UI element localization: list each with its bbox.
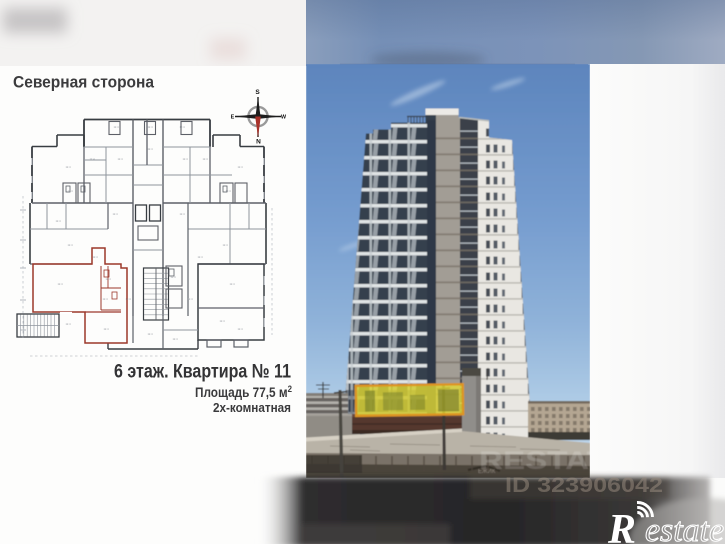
svg-text:12.4: 12.4 (112, 212, 118, 216)
svg-text:12.4: 12.4 (229, 282, 235, 286)
svg-text:12.4: 12.4 (170, 275, 176, 279)
svg-text:12.4: 12.4 (103, 327, 109, 331)
svg-text:12.4: 12.4 (202, 157, 208, 161)
svg-text:12.4: 12.4 (57, 282, 63, 286)
svg-text:W: W (281, 115, 287, 121)
svg-text:12.4: 12.4 (172, 337, 178, 341)
svg-text:S: S (255, 89, 260, 96)
svg-text:12.4: 12.4 (225, 189, 231, 193)
svg-text:12.4: 12.4 (179, 212, 185, 216)
svg-text:2х-комнатная: 2х-комнатная (213, 400, 291, 415)
svg-text:R: R (607, 507, 636, 544)
svg-text:12.4: 12.4 (65, 322, 71, 326)
svg-text:12.4: 12.4 (147, 332, 153, 336)
svg-text:12.4: 12.4 (219, 319, 225, 323)
svg-text:12.4: 12.4 (55, 219, 61, 223)
svg-text:12.4: 12.4 (117, 157, 123, 161)
svg-text:12.4: 12.4 (237, 165, 243, 169)
svg-text:12.4: 12.4 (197, 255, 203, 259)
svg-text:12.4: 12.4 (65, 165, 71, 169)
svg-text:12.4: 12.4 (113, 125, 119, 129)
svg-text:Северная сторона: Северная сторона (13, 73, 154, 92)
svg-text:12.4: 12.4 (182, 157, 188, 161)
svg-text:12.4: 12.4 (147, 147, 153, 151)
svg-text:12.4: 12.4 (222, 243, 228, 247)
svg-text:N: N (256, 139, 261, 146)
svg-text:12.4: 12.4 (179, 125, 185, 129)
svg-text:12.4: 12.4 (67, 189, 73, 193)
svg-text:6 этаж. Квартира № 11: 6 этаж. Квартира № 11 (114, 361, 291, 383)
svg-text:12.4: 12.4 (92, 255, 98, 259)
svg-text:Площадь 77,5 м2: Площадь 77,5 м2 (195, 384, 292, 400)
svg-text:12.4: 12.4 (237, 327, 243, 331)
svg-text:12.4: 12.4 (102, 297, 108, 301)
svg-text:ID 323906042: ID 323906042 (505, 473, 663, 497)
svg-text:estate: estate (645, 512, 724, 544)
svg-text:12.4: 12.4 (187, 297, 193, 301)
svg-text:12.4: 12.4 (147, 125, 153, 129)
svg-text:12.4: 12.4 (67, 243, 73, 247)
svg-text:12.4: 12.4 (89, 157, 95, 161)
svg-text:12.4: 12.4 (105, 277, 111, 281)
svg-text:12.4: 12.4 (125, 297, 131, 301)
svg-text:E: E (231, 115, 235, 121)
